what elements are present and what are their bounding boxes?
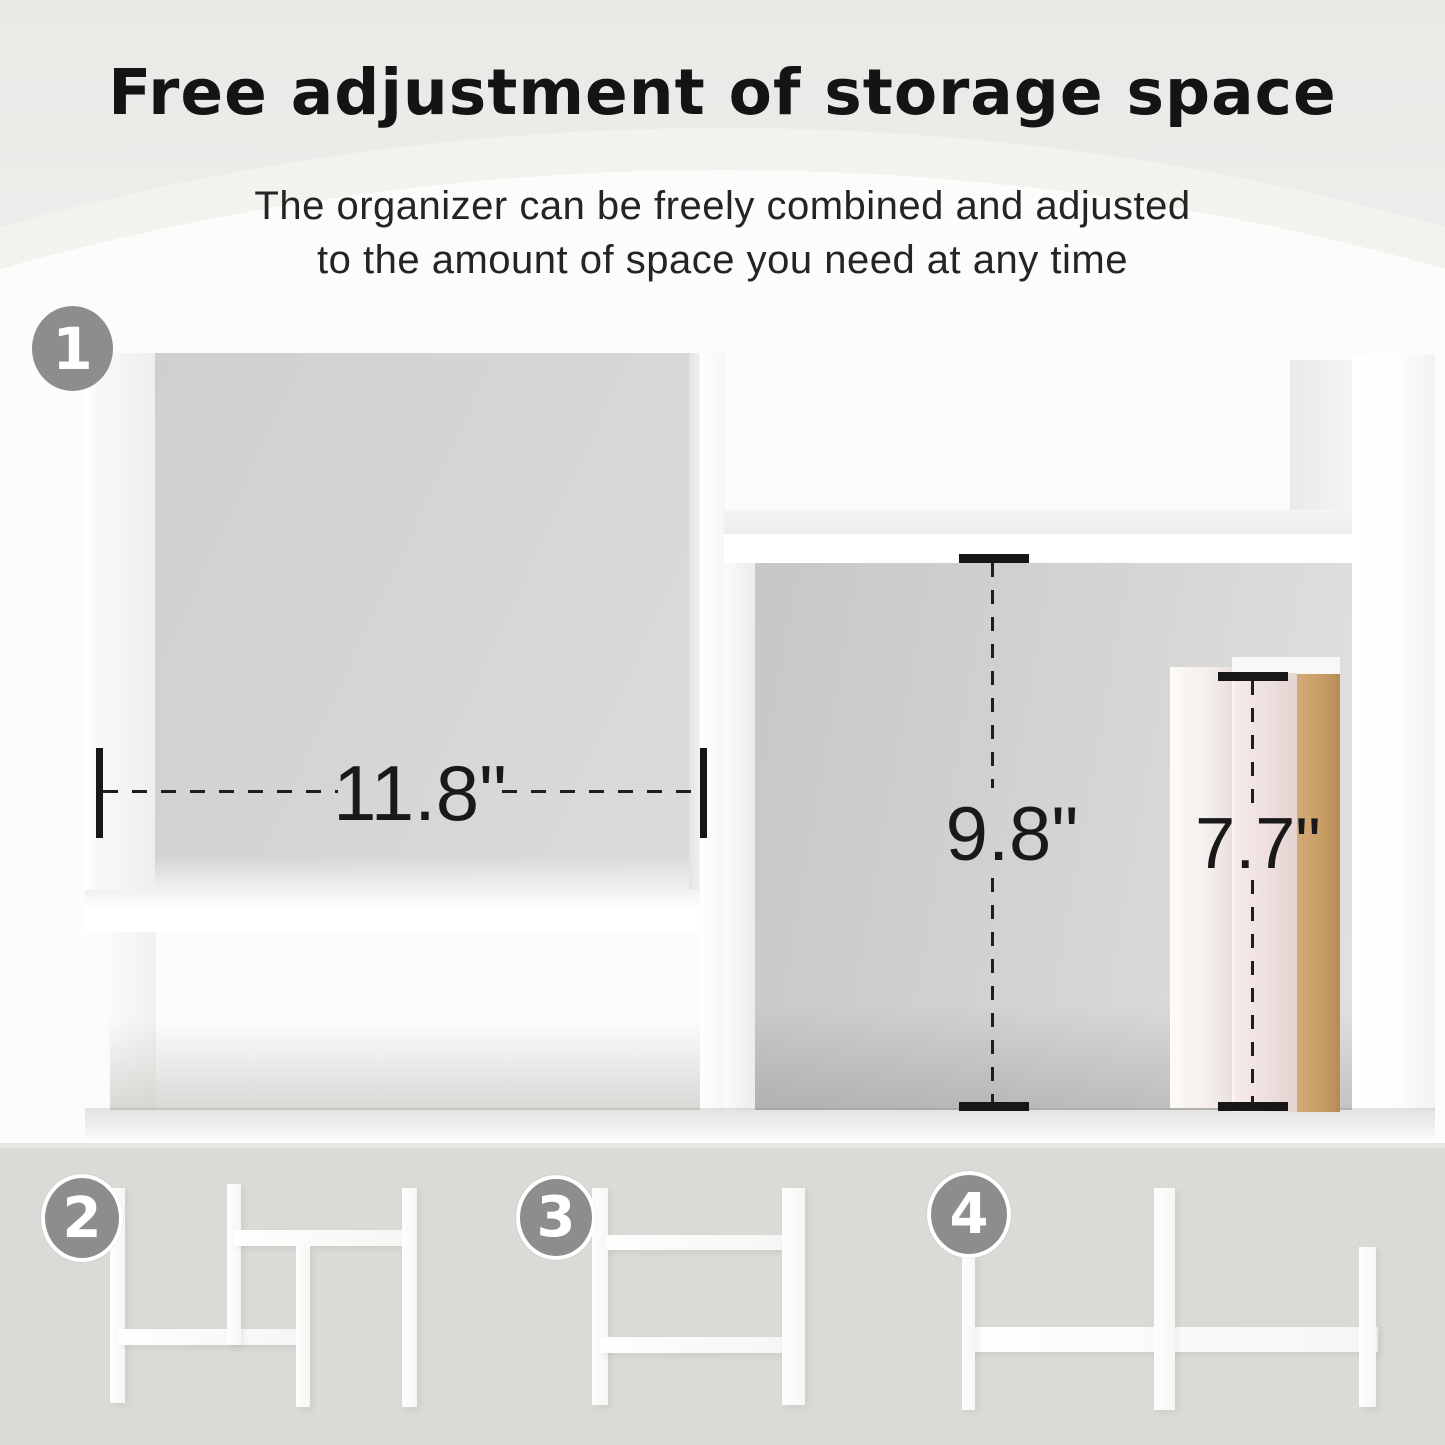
config-4-panel [1359, 1247, 1376, 1407]
subtitle-line-1: The organizer can be freely combined and… [0, 184, 1445, 229]
under-shelf-shadow [110, 1020, 710, 1110]
right-top-shelf-front [724, 534, 1352, 563]
width-dimension-label: 11.8" [330, 752, 510, 834]
height-dimension-top-cap [959, 554, 1029, 563]
config-3-shelf [606, 1235, 786, 1250]
config-4-panel [962, 1255, 975, 1410]
width-dimension-dash-left [103, 790, 338, 793]
book-dimension-dash-lower [1251, 880, 1254, 1102]
right-compartment-side-band [724, 563, 755, 1110]
book-spine-tan [1297, 657, 1340, 1112]
right-wall-inner-face [1290, 360, 1352, 511]
config-2-panel [296, 1246, 310, 1407]
left-compartment-floor-bevel [155, 856, 689, 890]
config-1-badge: 1 [32, 306, 113, 391]
book-dimension-label: 7.7" [1168, 806, 1348, 882]
configuration-strip [0, 1143, 1445, 1445]
left-wall-inner-face [99, 353, 155, 893]
config-2-badge: 2 [41, 1174, 123, 1262]
divider-shadow [689, 353, 700, 890]
book-spine-pink [1232, 657, 1297, 1112]
unit-cast-shadow [85, 1108, 1435, 1142]
config-2-panel [402, 1188, 417, 1407]
right-top-shelf-surface [724, 510, 1352, 534]
config-4-panel [1154, 1188, 1175, 1410]
width-dimension-right-tick [700, 748, 707, 838]
width-dimension-left-tick [96, 748, 103, 838]
book-dimension-top-cap [1218, 672, 1288, 681]
book-dimension-dash-upper [1251, 681, 1254, 803]
config-4-badge: 4 [927, 1171, 1011, 1258]
config-2-shelf [234, 1230, 408, 1246]
book-pages-top-edge [1234, 657, 1297, 673]
config-3-panel [782, 1188, 805, 1405]
config-3-badge: 3 [516, 1175, 596, 1260]
height-dimension-dash-upper [991, 563, 994, 788]
height-dimension-label: 9.8" [922, 795, 1102, 875]
width-dimension-dash-right [502, 790, 700, 793]
book-pages-top-edge [1297, 657, 1340, 674]
center-divider-panel [700, 353, 725, 1110]
right-wall-panel [1352, 355, 1435, 1110]
page-title: Free adjustment of storage space [0, 56, 1445, 129]
book-dimension-bottom-cap [1218, 1102, 1288, 1111]
left-bottom-shelf [85, 890, 725, 932]
subtitle-line-2: to the amount of space you need at any t… [0, 238, 1445, 283]
config-3-shelf [600, 1337, 784, 1353]
height-dimension-bottom-cap [959, 1102, 1029, 1111]
config-2-shelf [118, 1329, 298, 1345]
product-infographic: Free adjustment of storage space The org… [0, 0, 1445, 1445]
left-wall-front-edge [85, 353, 99, 932]
config-2-panel [227, 1184, 241, 1345]
height-dimension-dash-lower [991, 878, 994, 1102]
book-spine-cream [1170, 667, 1232, 1108]
